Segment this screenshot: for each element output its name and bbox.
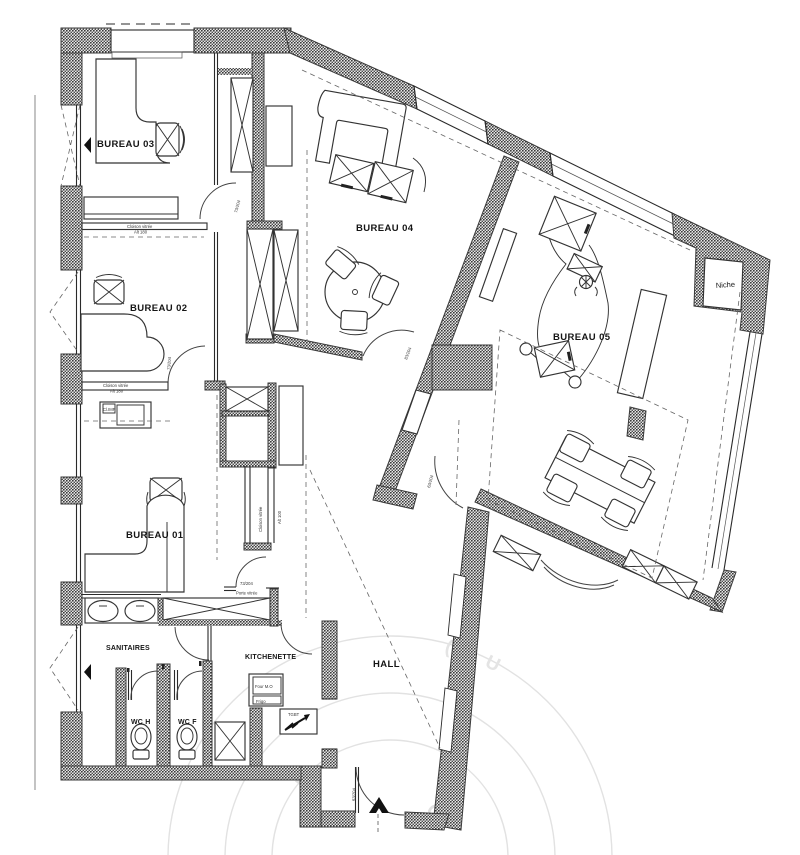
svg-text:KITCHENETTE: KITCHENETTE xyxy=(245,654,296,661)
svg-text:Cloison vitrée: Cloison vitrée xyxy=(127,224,153,229)
svg-text:Cloison vitrée: Cloison vitrée xyxy=(103,383,129,388)
svg-text:SANITAIRES: SANITAIRES xyxy=(106,645,150,652)
svg-text:Cloison vitrée: Cloison vitrée xyxy=(258,506,263,532)
svg-text:63/204: 63/204 xyxy=(351,787,356,801)
svg-text:BUREAU 04: BUREAU 04 xyxy=(356,223,414,234)
svg-text:TGBT: TGBT xyxy=(288,712,300,717)
svg-text:Alt 100: Alt 100 xyxy=(277,510,282,524)
svg-text:Cl.IMP: Cl.IMP xyxy=(103,407,116,412)
svg-text:Frigo: Frigo xyxy=(256,699,266,704)
svg-text:73/204: 73/204 xyxy=(240,581,253,586)
svg-text:BUREAU 01: BUREAU 01 xyxy=(126,530,184,541)
svg-text:Porte vitrée: Porte vitrée xyxy=(236,591,258,596)
svg-text:BUREAU 02: BUREAU 02 xyxy=(130,303,187,314)
svg-text:Alt 180: Alt 180 xyxy=(134,230,148,235)
svg-text:BUREAU 03: BUREAU 03 xyxy=(97,139,154,150)
svg-text:HALL: HALL xyxy=(373,659,400,670)
svg-text:Alt 180: Alt 180 xyxy=(110,389,124,394)
svg-text:Four M.O: Four M.O xyxy=(255,684,273,689)
svg-text:BUREAU 05: BUREAU 05 xyxy=(553,332,611,343)
svg-text:WC F: WC F xyxy=(178,719,197,726)
svg-text:Niche: Niche xyxy=(716,280,736,290)
svg-text:WC H: WC H xyxy=(131,719,150,726)
